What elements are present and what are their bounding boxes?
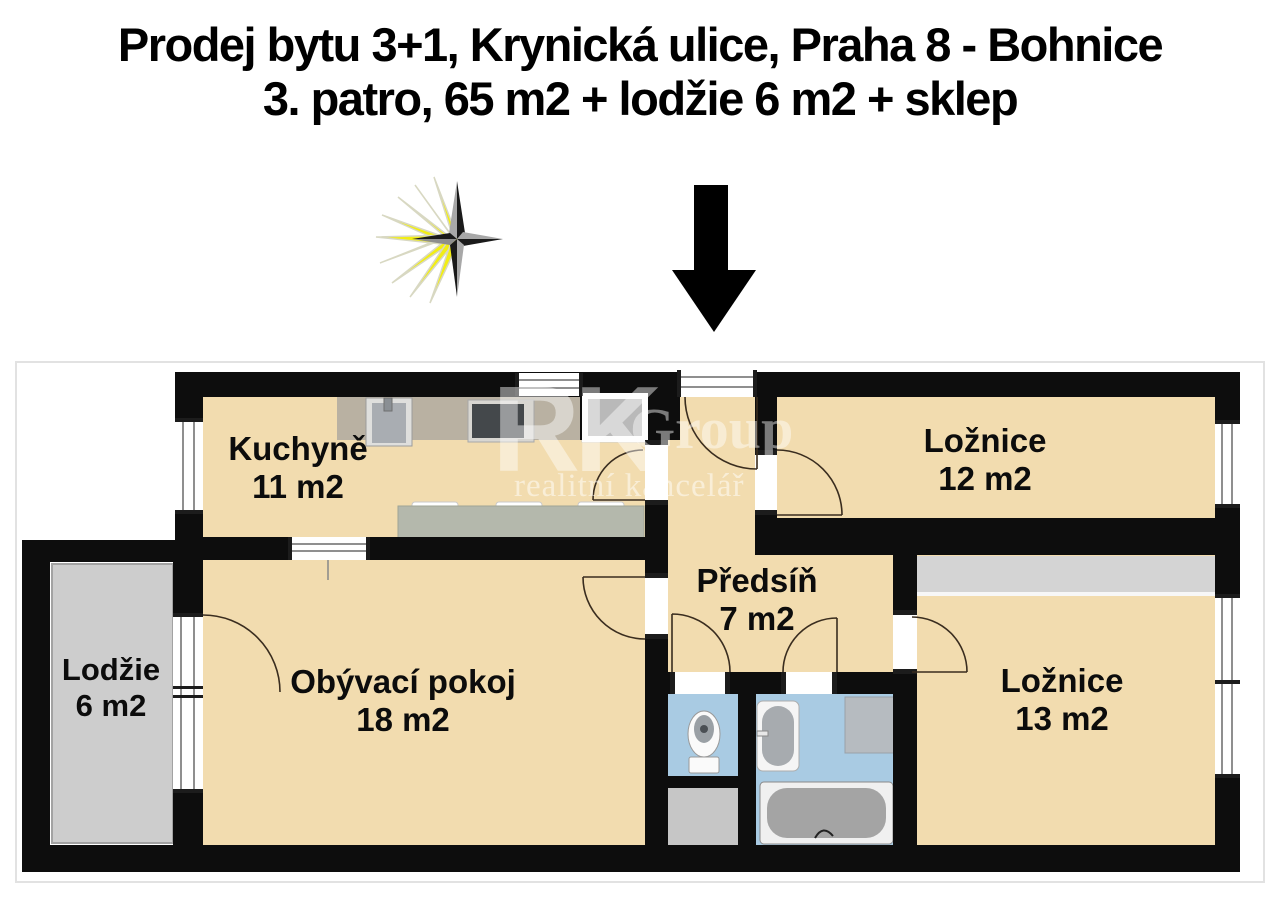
room-name: Ložnice (924, 422, 1047, 460)
compass-rose-icon (372, 175, 512, 313)
room-area: 7 m2 (696, 600, 817, 638)
room-name: Ložnice (1001, 662, 1124, 700)
room-name: Kuchyně (228, 430, 367, 468)
room-name: Lodžie (62, 652, 160, 688)
window (1215, 594, 1240, 778)
floor-plan (0, 355, 1280, 905)
bathroom-door-opening (781, 672, 837, 694)
room-name: Obývací pokoj (290, 663, 516, 701)
entrance-door-opening (677, 370, 757, 397)
room-label-living-room: Obývací pokoj 18 m2 (290, 663, 516, 739)
wc-door-opening (670, 672, 730, 694)
washing-machine (845, 697, 895, 753)
compass-star (412, 181, 503, 297)
room-name: Předsíň (696, 562, 817, 600)
room-area: 12 m2 (924, 460, 1047, 498)
room-area: 18 m2 (290, 701, 516, 739)
wardrobe (915, 556, 1217, 594)
title-line-2: 3. patro, 65 m2 + lodžie 6 m2 + sklep (0, 72, 1280, 126)
down-arrow-icon (668, 185, 760, 335)
utility-shaft (666, 788, 742, 845)
room-area: 11 m2 (228, 468, 367, 506)
bedroom13-door-opening (893, 610, 917, 674)
room-label-loggia: Lodžie 6 m2 (62, 652, 160, 724)
toilet (689, 757, 719, 773)
floorplan-page: Prodej bytu 3+1, Krynická ulice, Praha 8… (0, 0, 1280, 905)
balcony-door-window (173, 613, 203, 793)
room-label-hallway: Předsíň 7 m2 (696, 562, 817, 638)
window (1215, 420, 1240, 508)
room-area: 13 m2 (1001, 700, 1124, 738)
room-label-bedroom12: Ložnice 12 m2 (924, 422, 1047, 498)
living-room-door-opening (645, 573, 668, 639)
window (175, 418, 203, 514)
dining-table (398, 506, 644, 542)
bedroom12-door-opening (755, 450, 777, 515)
window (515, 373, 583, 396)
pass-through-window (288, 537, 370, 560)
kitchen-door-opening (645, 440, 668, 505)
faucet (384, 398, 392, 411)
room-label-bedroom13: Ložnice 13 m2 (1001, 662, 1124, 738)
room-area: 6 m2 (62, 688, 160, 724)
title-line-1: Prodej bytu 3+1, Krynická ulice, Praha 8… (0, 18, 1280, 72)
page-title: Prodej bytu 3+1, Krynická ulice, Praha 8… (0, 18, 1280, 126)
room-label-kitchen: Kuchyně 11 m2 (228, 430, 367, 506)
